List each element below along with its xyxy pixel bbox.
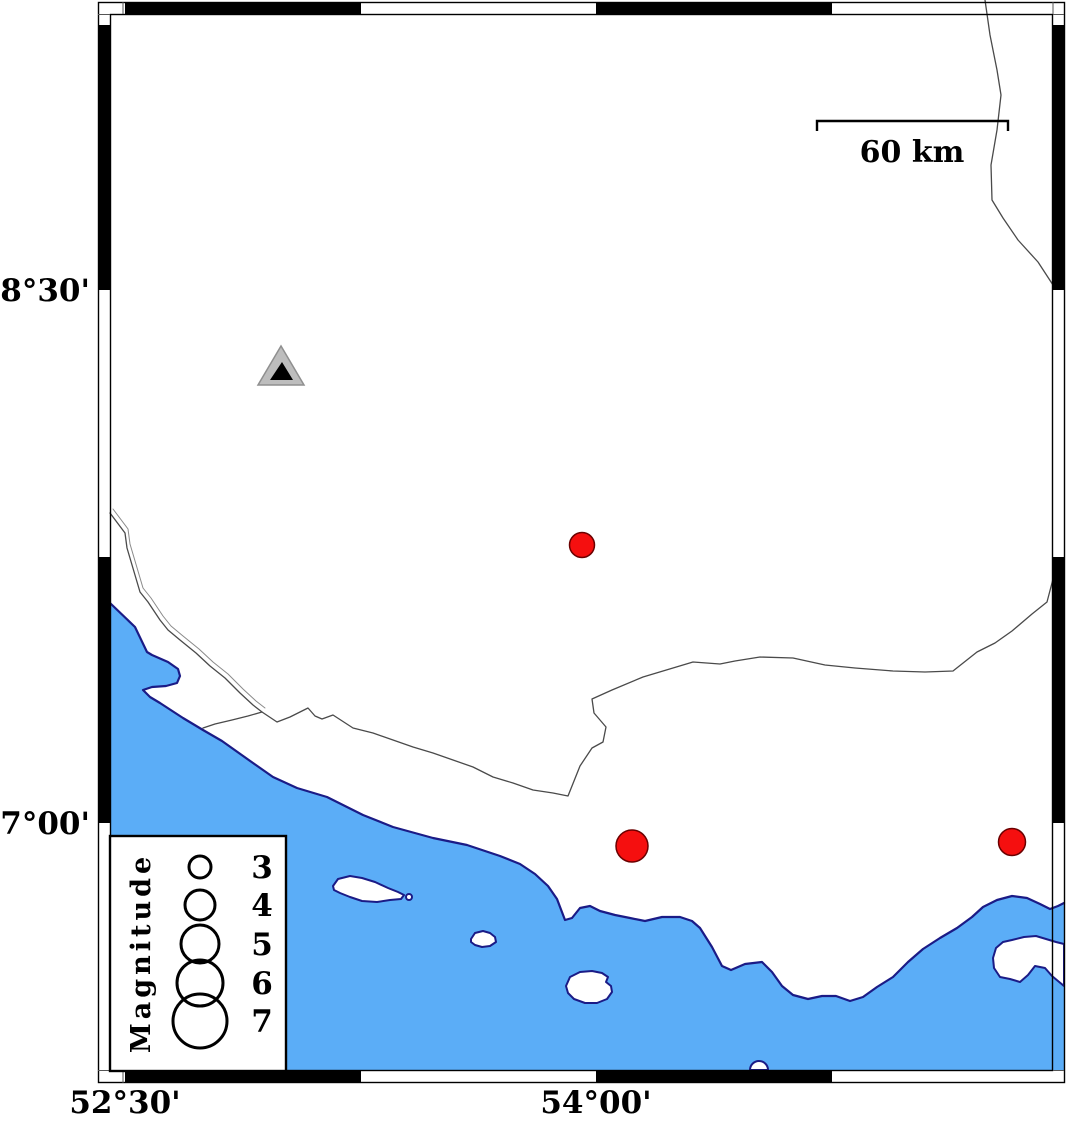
lat-label-27-00: 27°00' [0, 806, 90, 842]
legend-magnitude-label: 3 [251, 850, 273, 886]
frame-seg-top-2 [596, 3, 832, 14]
frame-seg-bottom-2 [596, 1071, 832, 1082]
lat-label-28-30: 28°30' [0, 273, 90, 309]
epicenter-markers-layer [570, 533, 1026, 863]
legend-magnitude-label: 7 [251, 1004, 273, 1040]
scale-bar: 60 km [817, 121, 1008, 170]
island-oval [566, 971, 612, 1003]
border-top-right [985, 0, 1053, 285]
borders-layer [110, 0, 1058, 796]
frame-seg-top-1 [125, 3, 361, 14]
lon-label-52-30: 52°30' [69, 1085, 180, 1121]
magnitude-legend: Magnitude 34567 [110, 836, 286, 1071]
frame-seg-left-1 [99, 25, 110, 290]
frame-seg-right-2 [1053, 557, 1064, 823]
lon-label-54-00: 54°00' [540, 1085, 651, 1121]
legend-magnitude-label: 6 [251, 966, 273, 1002]
epicenter-circle [999, 829, 1026, 856]
frame-seg-right-1 [1053, 25, 1064, 290]
epicenter-circle [616, 830, 648, 862]
scale-bar-line [817, 121, 1008, 131]
frame-seg-left-2 [99, 557, 110, 823]
legend-title: Magnitude [126, 853, 157, 1053]
island-tiny-dome [750, 1061, 768, 1070]
epicenter-circle [570, 533, 595, 558]
frame-seg-bottom-1 [125, 1071, 361, 1082]
border-branch-to-coast [203, 712, 262, 728]
station-markers-layer [258, 346, 304, 385]
map-canvas: 60 km 28°30' 27°00' 52°30' 54°00' [0, 0, 1066, 1122]
island-dot [406, 894, 412, 900]
seismicity-map-page: 60 km 28°30' 27°00' 52°30' 54°00' [0, 0, 1066, 1122]
legend-magnitude-label: 5 [251, 927, 273, 963]
scale-bar-label: 60 km [860, 135, 965, 170]
legend-magnitude-label: 4 [251, 888, 273, 924]
